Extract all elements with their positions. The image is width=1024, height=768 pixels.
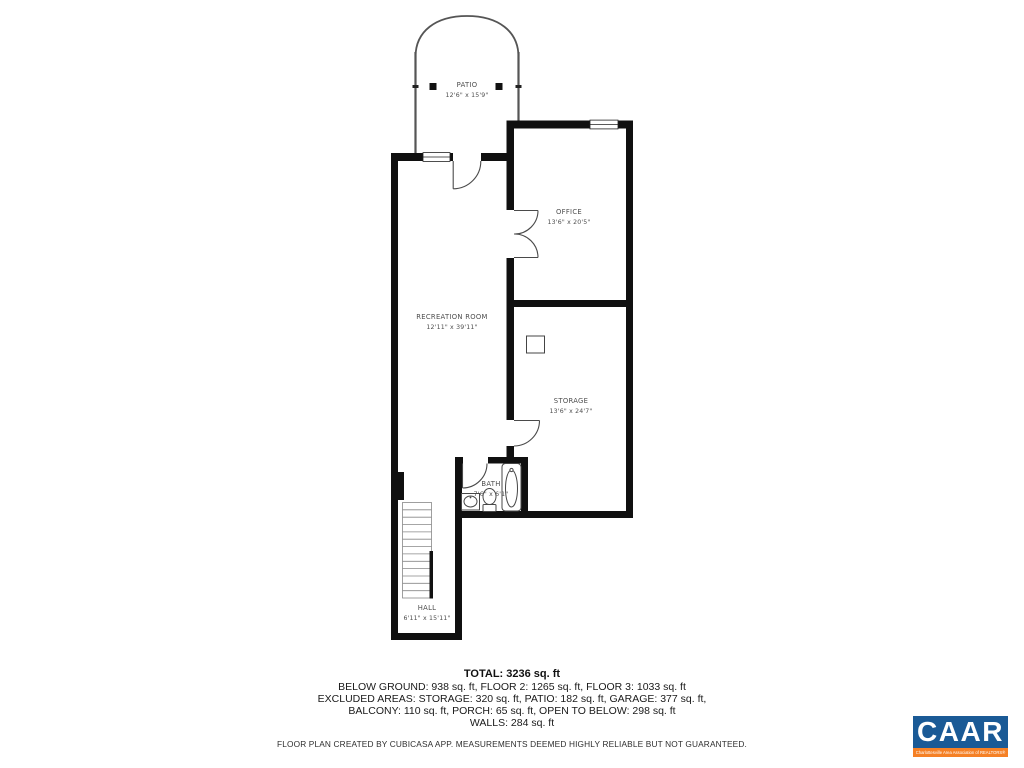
floor-plan-page: PATIO 12'6" x 15'9" OFFICE 13'6" x 20'5"…	[0, 0, 1024, 768]
storage-post	[527, 336, 545, 353]
room-name: OFFICE	[548, 208, 591, 216]
room-name: HALL	[403, 604, 450, 612]
caar-logo-text: CAAR	[913, 716, 1008, 748]
caar-logo-tagline: Charlottesville Area Association of REAL…	[913, 748, 1008, 757]
room-label-hall: HALL 6'11" x 15'11"	[403, 604, 450, 622]
room-label-recreation-room: RECREATION ROOM 12'11" x 39'11"	[416, 313, 487, 331]
walls-area: WALLS: 284 sq. ft	[0, 717, 1024, 729]
staircase	[403, 503, 434, 599]
area-summary: TOTAL: 3236 sq. ft BELOW GROUND: 938 sq.…	[0, 668, 1024, 729]
room-name: STORAGE	[550, 397, 593, 405]
room-label-storage: STORAGE 13'6" x 24'7"	[550, 397, 593, 415]
room-dims: 13'6" x 20'5"	[548, 219, 591, 226]
room-label-bath: BATH 7'6" x 6'1"	[474, 480, 509, 498]
floor-plan-drawing	[0, 0, 1024, 768]
caar-logo: CAAR Charlottesville Area Association of…	[913, 716, 1008, 757]
room-dims: 12'6" x 15'9"	[446, 92, 489, 99]
room-label-patio: PATIO 12'6" x 15'9"	[446, 81, 489, 99]
total-area: TOTAL: 3236 sq. ft	[0, 668, 1024, 681]
room-dims: 6'11" x 15'11"	[403, 615, 450, 622]
room-name: PATIO	[446, 81, 489, 89]
room-label-office: OFFICE 13'6" x 20'5"	[548, 208, 591, 226]
room-dims: 12'11" x 39'11"	[416, 324, 487, 331]
floor-areas: BELOW GROUND: 938 sq. ft, FLOOR 2: 1265 …	[0, 681, 1024, 693]
room-dims: 13'6" x 24'7"	[550, 408, 593, 415]
room-name: RECREATION ROOM	[416, 313, 487, 321]
excluded-areas-line2: BALCONY: 110 sq. ft, PORCH: 65 sq. ft, O…	[0, 705, 1024, 717]
excluded-areas-line1: EXCLUDED AREAS: STORAGE: 320 sq. ft, PAT…	[0, 693, 1024, 705]
disclaimer: FLOOR PLAN CREATED BY CUBICASA APP. MEAS…	[0, 739, 1024, 749]
room-name: BATH	[474, 480, 509, 488]
room-dims: 7'6" x 6'1"	[474, 491, 509, 498]
